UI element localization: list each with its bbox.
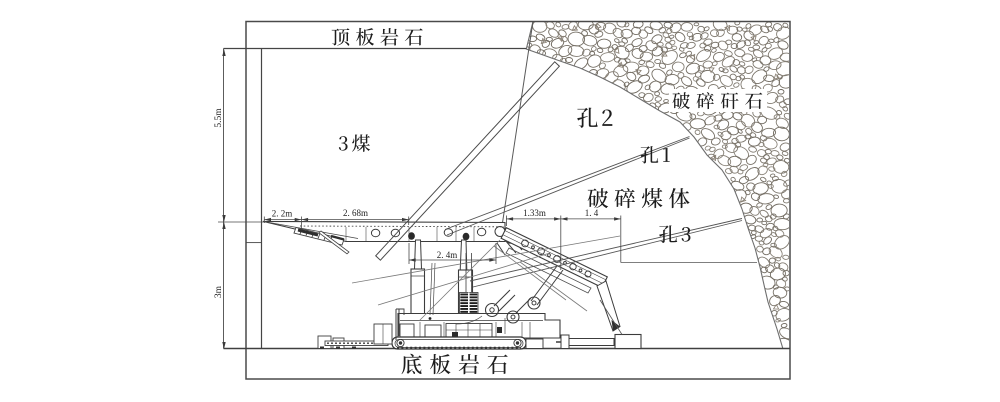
svg-text:1. 4: 1. 4 <box>585 208 599 218</box>
svg-text:5.5m: 5.5m <box>214 108 224 128</box>
svg-text:3m: 3m <box>214 285 224 298</box>
svg-text:2. 2m: 2. 2m <box>272 209 293 219</box>
svg-text:1.33m: 1.33m <box>523 208 546 218</box>
svg-text:2. 4m: 2. 4m <box>437 250 458 260</box>
svg-text:2. 68m: 2. 68m <box>343 208 368 218</box>
